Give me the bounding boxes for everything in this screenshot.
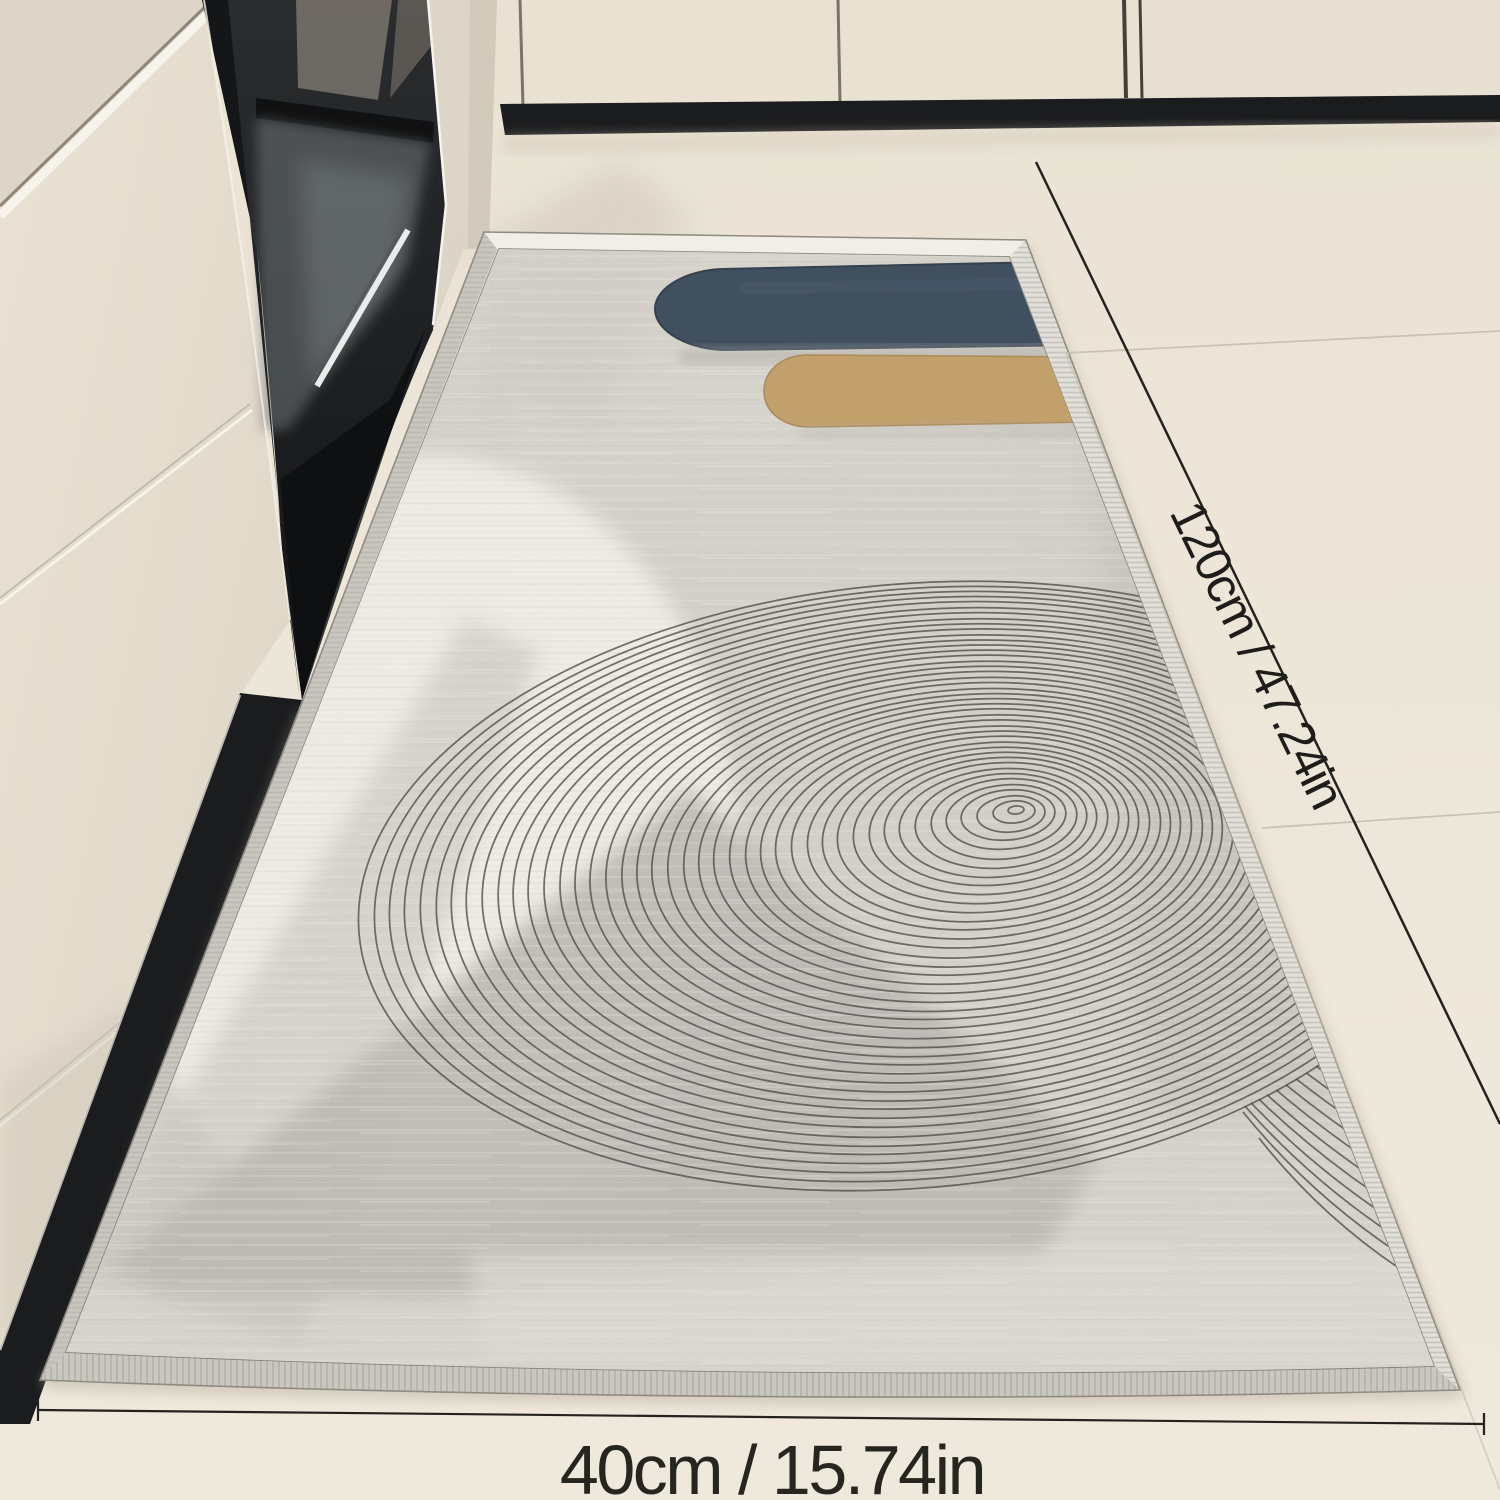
svg-text:40cm / 15.74in: 40cm / 15.74in <box>560 1431 984 1500</box>
